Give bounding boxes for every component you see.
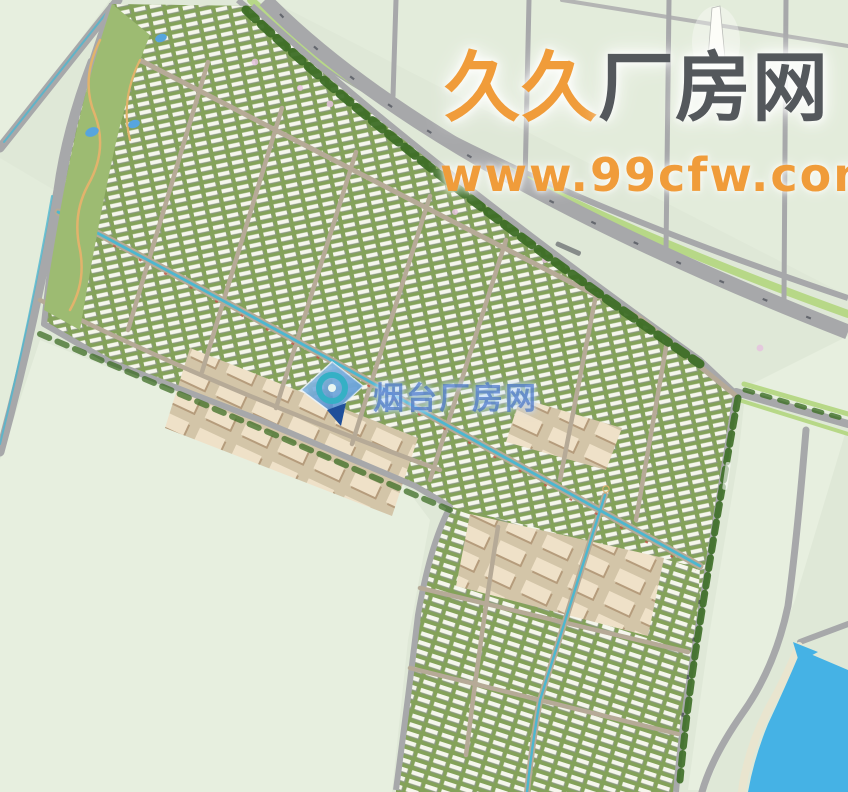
landmark-tower [692, 6, 740, 78]
site-plan-rendering [0, 0, 848, 792]
planning-map-screenshot: 久久厂房网 www.99cfw.com 烟台厂房网 [0, 0, 848, 792]
